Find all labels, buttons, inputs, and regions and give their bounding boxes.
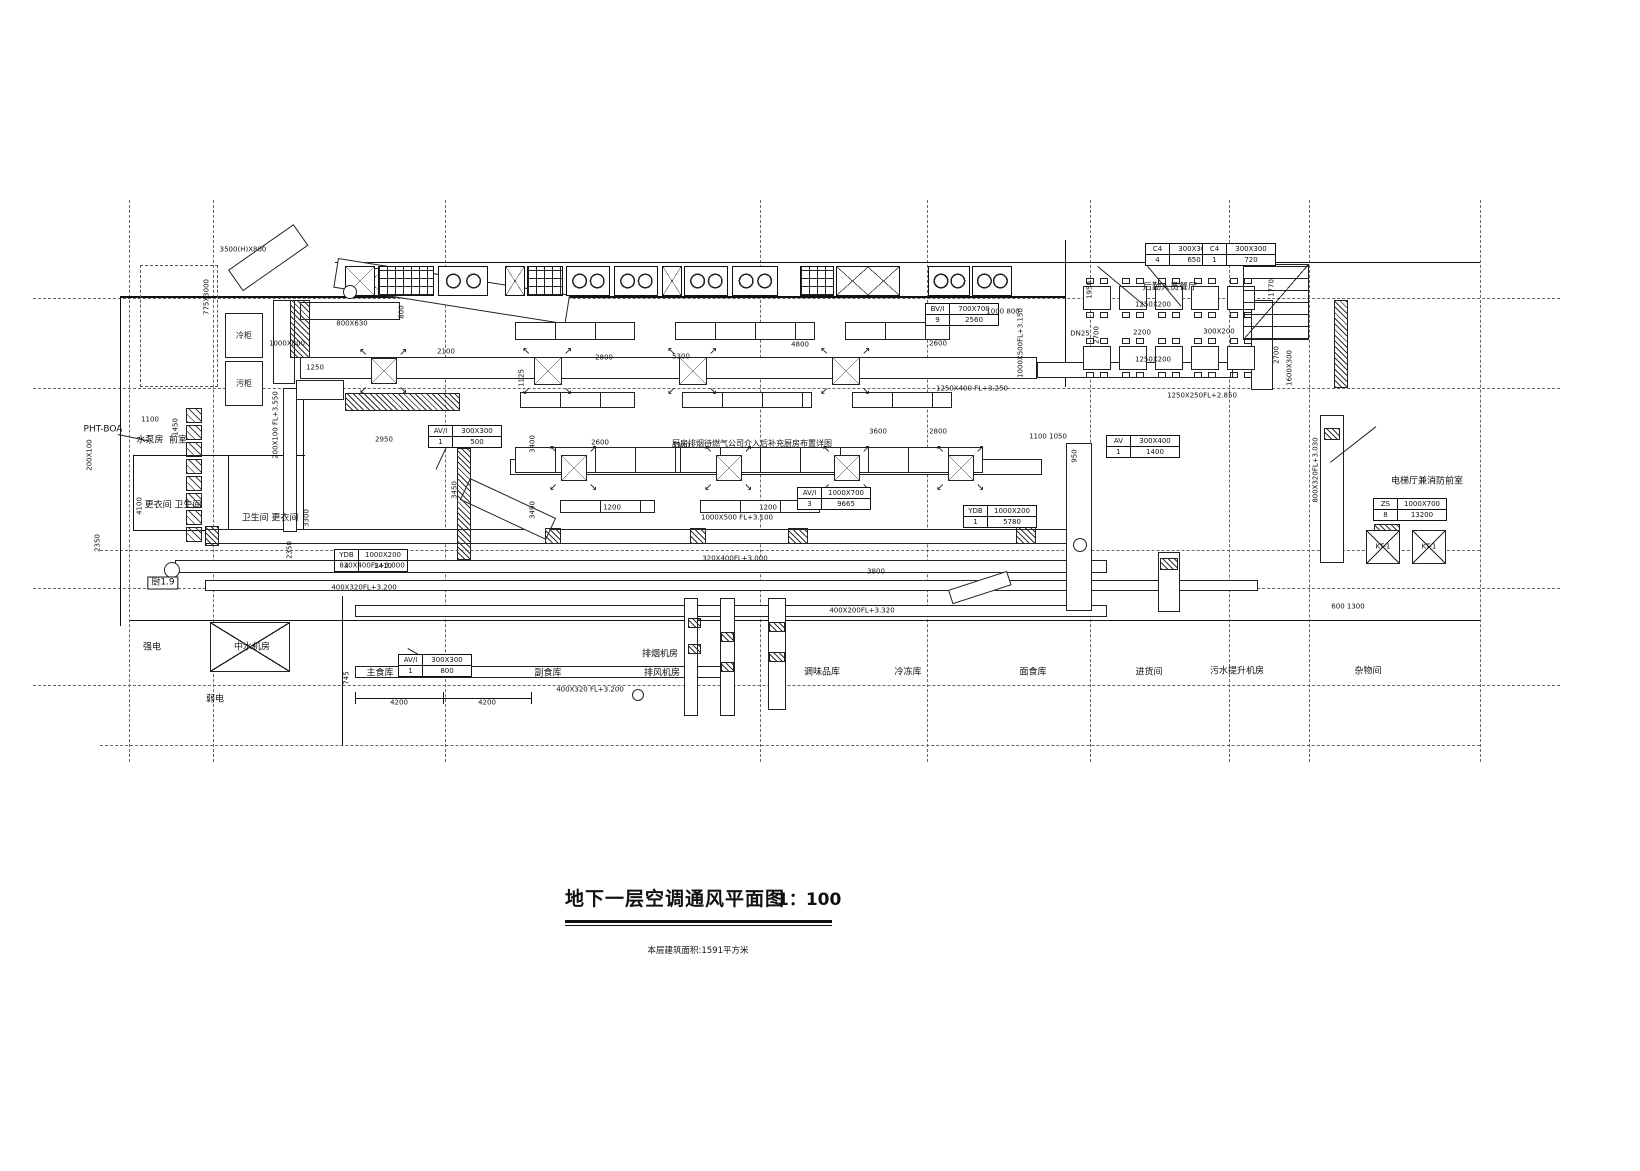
wall-line xyxy=(120,296,121,626)
duct-size-label: 1250X250FL+2.850 xyxy=(1167,393,1237,400)
diffuser-symbol xyxy=(561,455,587,481)
damper-symbol xyxy=(788,528,808,544)
chair-symbol xyxy=(1122,312,1130,318)
worktable-symbol xyxy=(675,322,815,340)
wall-shaft-box xyxy=(186,408,202,423)
dim-label: 1200 xyxy=(759,505,777,512)
chair-symbol xyxy=(1194,338,1202,344)
hood-symbol xyxy=(836,266,900,296)
dining-table xyxy=(1191,346,1219,370)
equipment-tag-cell: 1000X700 xyxy=(1398,499,1446,509)
title-block: 地下一层空调通风平面图 1：100 本层建筑面积:1591平方米 xyxy=(565,884,865,964)
dim-label: 2950 xyxy=(375,437,393,444)
equipment-tag-cell: 8 xyxy=(1374,509,1398,520)
airflow-arrow: ↖ xyxy=(549,444,557,455)
grid-hline xyxy=(33,685,1560,686)
duct-run-horizontal xyxy=(300,357,1037,379)
grid-hline xyxy=(100,550,1480,551)
equipment-tag-cell: ZS xyxy=(1374,499,1398,509)
duct-size-label: 400X320 FL+3.200 xyxy=(556,687,624,694)
wall-shaft-box xyxy=(186,476,202,491)
equipment-tag-cell: 1000X200 xyxy=(359,550,407,560)
chair-symbol xyxy=(1100,278,1108,284)
diffuser-symbol xyxy=(834,455,860,481)
room-label: 后勤人员餐厅 xyxy=(1143,284,1197,293)
dim-label-rotated: 2700 xyxy=(1274,346,1281,364)
equipment-tag: C4300X3001720 xyxy=(1202,243,1276,266)
dim-label: 2800 xyxy=(929,429,947,436)
duct-size-label: 400X320FL+3.200 xyxy=(331,585,396,592)
equipment-tag: AV/I1000X70039665 xyxy=(797,487,871,510)
chair-symbol xyxy=(1172,372,1180,378)
worktable-symbol xyxy=(682,392,812,408)
airflow-arrow: ↘ xyxy=(589,482,597,493)
duct-run-horizontal xyxy=(205,529,1077,544)
dim-label-rotated: 800X320FL+3.030 xyxy=(1313,437,1320,502)
cold-cabinet-label: 冷柜 xyxy=(236,332,252,340)
duct-run-vertical xyxy=(684,598,698,716)
duct-size-label: 1250X200 xyxy=(1135,302,1171,309)
equipment-tag-cell: C4 xyxy=(1203,244,1227,254)
wall-shaft-box xyxy=(186,425,202,440)
duct-size-label: 3500(H)X800 xyxy=(220,247,267,254)
duct-run-horizontal xyxy=(175,560,1107,573)
equipment-tag: AV300X40011400 xyxy=(1106,435,1180,458)
duct-size-label: 300X200 xyxy=(1203,329,1235,336)
hood-symbol xyxy=(662,266,682,296)
airflow-arrow: ↘ xyxy=(862,386,870,397)
room-label: 进货间 xyxy=(1135,669,1162,678)
airflow-arrow: ↖ xyxy=(522,346,530,357)
grid-hline xyxy=(100,745,1480,746)
duct-size-label: 600 1300 xyxy=(1331,604,1364,611)
room-label: 卫生间 更衣间 xyxy=(242,515,299,524)
dim-label: 2600 xyxy=(929,341,947,348)
chair-symbol xyxy=(1158,312,1166,318)
fan-symbol xyxy=(343,285,357,299)
equipment-tag-cell: 1 xyxy=(399,665,423,676)
chair-symbol xyxy=(1230,372,1238,378)
airflow-arrow: ↙ xyxy=(704,482,712,493)
room-label: 杂物间 xyxy=(1354,668,1381,677)
equipment-tag-cell: 1400 xyxy=(1131,446,1179,457)
damper-symbol xyxy=(690,528,706,544)
dim-label-rotated: 1950 xyxy=(1087,281,1094,299)
equipment-tag-cell: 9665 xyxy=(822,498,870,509)
wall-line xyxy=(335,262,1035,263)
wall-shaft-box xyxy=(186,527,202,542)
chair-symbol xyxy=(1208,338,1216,344)
airflow-arrow: ↗ xyxy=(862,444,870,455)
stove-symbol xyxy=(684,266,728,296)
equipment-tag-cell: 13200 xyxy=(1398,509,1446,520)
duct-size-label: 1250X200 xyxy=(1135,357,1171,364)
dim-label: 2100 xyxy=(437,349,455,356)
room-label: 排烟机房 xyxy=(642,651,678,660)
equipment-tag-cell: 300X300 xyxy=(1227,244,1275,254)
equipment-tag-cell: 1 xyxy=(1203,254,1227,265)
title-underline xyxy=(565,920,832,923)
dim-label: 1000 800 xyxy=(986,309,1019,316)
wall-shaft-box xyxy=(186,442,202,457)
airflow-arrow: ↖ xyxy=(820,346,828,357)
duct-size-label: 1250X400 FL+3.250 xyxy=(936,386,1008,393)
diffuser-symbol xyxy=(832,357,860,385)
dim-label-rotated: 950 xyxy=(1072,449,1079,462)
equipment-tag: AV/I300X3001800 xyxy=(398,654,472,677)
dining-table xyxy=(1083,346,1111,370)
wall-shaft-box xyxy=(186,459,202,474)
chair-symbol xyxy=(1158,372,1166,378)
damper-symbol xyxy=(721,662,734,672)
equipment-tag-cell: 3 xyxy=(798,498,822,509)
room-label: 电梯厅兼消防前室 xyxy=(1391,478,1463,487)
dim-label-rotated: 745 xyxy=(344,671,351,684)
dim-label: 1100 xyxy=(141,417,159,424)
stove-symbol xyxy=(928,266,970,296)
chair-symbol xyxy=(1230,312,1238,318)
duct-run-horizontal xyxy=(296,380,344,400)
equipment-tag-cell: 1000X700 xyxy=(822,488,870,498)
equipment-tag-cell: YDB xyxy=(964,506,988,516)
equipment-tag-cell: BV/I xyxy=(926,304,950,314)
airflow-arrow: ↘ xyxy=(709,386,717,397)
duct-run-horizontal xyxy=(300,302,400,320)
damper-symbol xyxy=(688,618,701,628)
room-label: 前室 xyxy=(169,437,187,446)
wall-line xyxy=(228,455,229,531)
duct-elbow xyxy=(228,224,308,291)
wall-line xyxy=(531,692,532,704)
dim-label-rotated: 1770 xyxy=(1269,279,1276,297)
equipment-tag-cell: AV/I xyxy=(399,655,423,665)
diffuser-symbol xyxy=(948,455,974,481)
dim-label-rotated: 1000X500FL+3.150 xyxy=(1018,308,1025,378)
chair-symbol xyxy=(1100,312,1108,318)
wall-line xyxy=(355,692,356,704)
airflow-arrow: ↙ xyxy=(522,386,530,397)
dim-label-rotated: 3400 xyxy=(530,435,537,453)
room-label: 水泵房 xyxy=(136,437,163,446)
ac-unit-label: KT-1 xyxy=(1422,544,1437,551)
damper-symbol xyxy=(1334,300,1348,388)
airflow-arrow: ↙ xyxy=(549,482,557,493)
room-label: 主食库 xyxy=(366,670,393,679)
duct-size-label: 1000X800 xyxy=(269,341,305,348)
dim-label-rotated: 3300 xyxy=(304,509,311,527)
chair-symbol xyxy=(1194,372,1202,378)
room-label: 更衣间 卫生间 xyxy=(145,502,202,511)
chair-symbol xyxy=(1100,372,1108,378)
airflow-arrow: ↘ xyxy=(564,386,572,397)
chair-symbol xyxy=(1230,338,1238,344)
stove-symbol xyxy=(614,266,658,296)
airflow-arrow: ↗ xyxy=(564,346,572,357)
equipment-tag-cell: YDB xyxy=(335,550,359,560)
duct-size-label: 830X400FL+3.000 xyxy=(339,563,404,570)
stove-symbol xyxy=(438,266,488,296)
diffuser-symbol xyxy=(371,358,397,384)
dim-label: 2800 xyxy=(595,355,613,362)
chair-symbol xyxy=(1122,338,1130,344)
equipment-tag-cell: 1 xyxy=(1107,446,1131,457)
worktable-symbol xyxy=(520,392,635,408)
ac-unit-label: KT-1 xyxy=(1376,544,1391,551)
equipment-tag-cell: 4 xyxy=(1146,254,1170,265)
dim-label-rotated: 2350 xyxy=(287,541,294,559)
equipment-tag-cell: 5780 xyxy=(988,516,1036,527)
chair-symbol xyxy=(1172,338,1180,344)
room-label: 污水提升机房 xyxy=(1210,668,1264,677)
stove-symbol xyxy=(972,266,1012,296)
dim-label: 4800 xyxy=(791,342,809,349)
kitchen-note: 厨房排烟待燃气公司介入后补充厨房布置详图 xyxy=(672,440,832,448)
dim-label: 5300 xyxy=(672,354,690,361)
equipment-tag: AV/I300X3001500 xyxy=(428,425,502,448)
counter-symbol xyxy=(378,266,434,296)
damper-symbol xyxy=(1160,558,1178,570)
dim-label-rotated: 1600X300 xyxy=(1287,350,1294,386)
airflow-arrow: ↘ xyxy=(976,482,984,493)
equipment-tag-cell: 500 xyxy=(453,436,501,447)
dim-label: 3600 xyxy=(869,429,887,436)
chair-symbol xyxy=(1208,278,1216,284)
wall-line xyxy=(443,692,444,704)
airflow-arrow: ↙ xyxy=(359,385,367,396)
diffuser-symbol xyxy=(534,357,562,385)
dining-table xyxy=(1227,346,1255,370)
airflow-arrow: ↘ xyxy=(399,385,407,396)
chair-symbol xyxy=(1208,312,1216,318)
area-note: 本层建筑面积:1591平方米 xyxy=(648,944,749,956)
room-label: 中水机房 xyxy=(234,644,270,653)
damper-symbol xyxy=(769,652,785,662)
airflow-arrow: ↗ xyxy=(976,444,984,455)
chair-symbol xyxy=(1194,312,1202,318)
damper-symbol xyxy=(205,526,219,546)
drawing-scale: 1：100 xyxy=(777,885,841,910)
chair-symbol xyxy=(1100,338,1108,344)
stove-symbol xyxy=(732,266,778,296)
chair-symbol xyxy=(1244,372,1252,378)
duct-size-label: 400X200FL+3.320 xyxy=(829,608,894,615)
airflow-arrow: ↙ xyxy=(667,386,675,397)
equipment-tag-cell: 9 xyxy=(926,314,950,325)
hood-symbol xyxy=(505,266,525,296)
damper-symbol xyxy=(545,528,561,544)
dim-label-rotated: 800 xyxy=(399,305,406,318)
dim-label-rotated: 3450 xyxy=(452,481,459,499)
equipment-tag-cell: 300X300 xyxy=(453,426,501,436)
title-underline xyxy=(565,925,832,926)
chair-symbol xyxy=(1122,278,1130,284)
chair-symbol xyxy=(1158,338,1166,344)
damper-symbol xyxy=(721,632,734,642)
equipment-tag-cell: 2560 xyxy=(950,314,998,325)
equipment-tag-cell: 720 xyxy=(1227,254,1275,265)
worktable-symbol xyxy=(515,447,685,473)
equipment-tag-cell: 300X400 xyxy=(1131,436,1179,446)
worktable-symbol xyxy=(515,322,635,340)
airflow-arrow: ↗ xyxy=(709,346,717,357)
dim-label-rotated: 1450 xyxy=(173,418,180,436)
room-label: 副食库 xyxy=(534,670,561,679)
counter-symbol xyxy=(527,266,563,296)
chair-symbol xyxy=(1136,312,1144,318)
damper-symbol xyxy=(769,622,785,632)
chair-symbol xyxy=(1086,312,1094,318)
dim-label: 1250 xyxy=(306,365,324,372)
airflow-arrow: ↘ xyxy=(744,482,752,493)
fan-symbol xyxy=(1073,538,1087,552)
drawing-title: 地下一层空调通风平面图 xyxy=(565,884,785,911)
room-label: 厨1.9 xyxy=(147,577,178,590)
equipment-tag: ZS1000X700813200 xyxy=(1373,498,1447,521)
dim-label-rotated: 2700 xyxy=(1094,326,1101,344)
grid-vline xyxy=(129,200,130,762)
dim-label-rotated: 775X3000 xyxy=(204,279,211,315)
duct-size-label: 800X630 xyxy=(336,321,368,328)
airflow-arrow: ↙ xyxy=(820,386,828,397)
dim-label-rotated: 4100 xyxy=(137,497,144,515)
diffuser-symbol xyxy=(679,357,707,385)
equipment-tag-cell: AV/I xyxy=(429,426,453,436)
room-label: 弱电 xyxy=(206,696,224,705)
airflow-arrow: ↗ xyxy=(862,346,870,357)
chair-symbol xyxy=(1136,338,1144,344)
dim-label-rotated: 2350 xyxy=(95,534,102,552)
damper-symbol xyxy=(688,644,701,654)
stair-symbol xyxy=(1243,264,1309,340)
equipment-tag-cell: 300X300 xyxy=(423,655,471,665)
equipment-tag-cell: 1 xyxy=(964,516,988,527)
wall-line xyxy=(130,620,1480,621)
stove-symbol xyxy=(566,266,610,296)
dim-label-rotated: 1125 xyxy=(519,369,526,387)
duct-size-label: 1000X500 FL+3.100 xyxy=(701,515,773,522)
dim-label-rotated: 200X100 FL+3.550 xyxy=(273,391,280,459)
chair-symbol xyxy=(1086,372,1094,378)
room-label: 冷冻库 xyxy=(894,669,921,678)
equipment-tag-cell: AV xyxy=(1107,436,1131,446)
duct-size-label: DN25 xyxy=(1070,331,1090,338)
equipment-tag-cell: 1 xyxy=(429,436,453,447)
equipment-tag: YDB1000X20015780 xyxy=(963,505,1037,528)
dim-label: 2600 xyxy=(591,440,609,447)
airflow-arrow: ↖ xyxy=(359,347,367,358)
damper-symbol xyxy=(1324,428,1340,440)
equipment-tag-cell: 1000X200 xyxy=(988,506,1036,516)
chair-symbol xyxy=(1122,372,1130,378)
airflow-arrow: ↖ xyxy=(936,444,944,455)
duct-size-label: 3800 xyxy=(867,569,885,576)
duct-run-vertical xyxy=(283,388,297,532)
airflow-arrow: ↗ xyxy=(399,347,407,358)
room-label: 面食库 xyxy=(1019,669,1046,678)
dim-label: 1200 xyxy=(603,505,621,512)
wall-line xyxy=(120,296,1065,298)
duct-elbow xyxy=(948,571,1012,604)
grid-vline xyxy=(1480,200,1481,762)
dim-label: 4200 xyxy=(478,700,496,707)
dim-label-rotated: 200X100 xyxy=(87,439,94,471)
chair-symbol xyxy=(1172,312,1180,318)
diffuser-symbol xyxy=(716,455,742,481)
cold-cabinet-label: 污柜 xyxy=(236,380,252,388)
damper-symbol xyxy=(290,300,310,358)
grid-hline xyxy=(33,298,1560,299)
wall-line xyxy=(133,455,134,531)
damper-symbol xyxy=(457,448,471,560)
chair-symbol xyxy=(1208,372,1216,378)
wall-shaft-box xyxy=(186,510,202,525)
chair-symbol xyxy=(1230,278,1238,284)
room-label: 调味品库 xyxy=(804,669,840,678)
equipment-tag-cell: AV/I xyxy=(798,488,822,498)
room-label: 强电 xyxy=(143,644,161,653)
grid-vline xyxy=(1309,200,1310,762)
chair-symbol xyxy=(1136,372,1144,378)
equipment-tag-cell: C4 xyxy=(1146,244,1170,254)
room-label: 排风机房 xyxy=(644,670,680,679)
equipment-tag-cell: 800 xyxy=(423,665,471,676)
grid-vline xyxy=(1229,200,1230,762)
dim-label: 1100 1050 xyxy=(1029,434,1067,441)
duct-run-vertical xyxy=(1066,443,1092,611)
counter-symbol xyxy=(800,266,834,296)
duct-size-label: 2200 xyxy=(1133,330,1151,337)
duct-run-vertical xyxy=(720,598,735,716)
room-label: PHT-BOA xyxy=(84,426,123,435)
fan-symbol xyxy=(632,689,644,701)
floorplan-canvas: 地下一层空调通风平面图 1：100 本层建筑面积:1591平方米 KT-1KT-… xyxy=(0,0,1640,1171)
dim-label: 4200 xyxy=(390,700,408,707)
duct-size-label: 320X400FL+3.000 xyxy=(702,556,767,563)
dim-label-rotated: 3490 xyxy=(530,501,537,519)
airflow-arrow: ↙ xyxy=(936,482,944,493)
